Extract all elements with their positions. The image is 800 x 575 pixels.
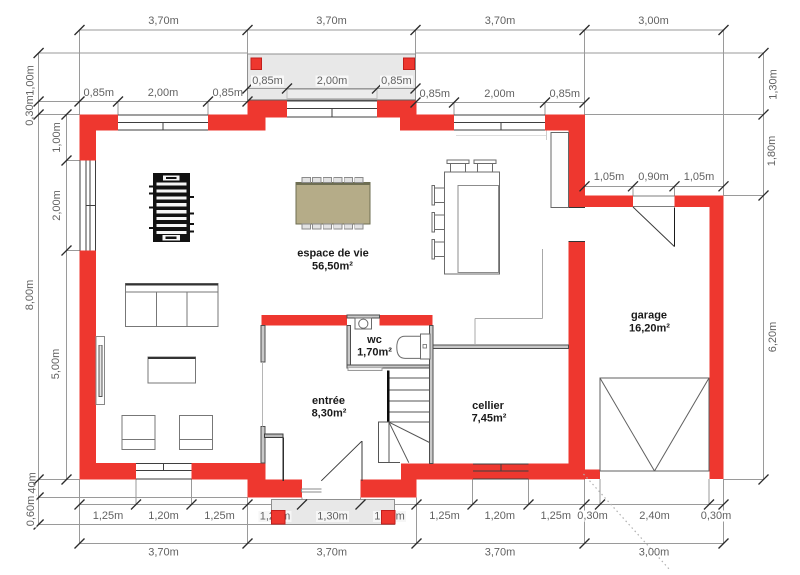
- svg-text:1,25m: 1,25m: [204, 510, 235, 522]
- svg-text:6,20m: 6,20m: [767, 322, 779, 353]
- svg-text:8,30m²: 8,30m²: [312, 408, 347, 420]
- svg-text:8,00m: 8,00m: [24, 280, 36, 311]
- svg-text:2,40m: 2,40m: [639, 510, 670, 522]
- svg-text:espace de vie: espace de vie: [297, 248, 369, 260]
- svg-text:3,70m: 3,70m: [317, 547, 348, 559]
- svg-text:16,20m²: 16,20m²: [629, 323, 670, 335]
- svg-text:1,00m: 1,00m: [25, 65, 37, 96]
- svg-text:1,80m: 1,80m: [766, 136, 778, 167]
- svg-text:0,85m: 0,85m: [252, 75, 283, 87]
- svg-text:1,30m: 1,30m: [768, 69, 780, 100]
- svg-text:1,25m: 1,25m: [540, 510, 571, 522]
- svg-text:3,00m: 3,00m: [639, 547, 670, 559]
- svg-text:0,85m: 0,85m: [83, 87, 114, 99]
- svg-text:3,00m: 3,00m: [638, 15, 669, 27]
- svg-text:1,05m: 1,05m: [684, 171, 715, 183]
- svg-text:1,70m²: 1,70m²: [357, 347, 392, 359]
- svg-text:3,70m: 3,70m: [485, 547, 516, 559]
- svg-text:1,30m: 1,30m: [317, 511, 348, 523]
- svg-text:1,20m: 1,20m: [148, 510, 179, 522]
- svg-text:cellier: cellier: [472, 400, 505, 412]
- svg-text:wc: wc: [366, 334, 382, 346]
- svg-text:56,50m²: 56,50m²: [312, 261, 353, 273]
- svg-text:3,70m: 3,70m: [148, 547, 179, 559]
- svg-text:1,20m: 1,20m: [484, 510, 515, 522]
- svg-text:3,70m: 3,70m: [148, 15, 179, 27]
- svg-text:0,85m: 0,85m: [381, 75, 412, 87]
- svg-text:0,90m: 0,90m: [638, 171, 669, 183]
- svg-text:0,85m: 0,85m: [419, 88, 450, 100]
- svg-text:2,00m: 2,00m: [148, 87, 179, 99]
- svg-text:1,00m: 1,00m: [51, 122, 63, 153]
- svg-text:3,70m: 3,70m: [316, 15, 347, 27]
- svg-text:7,45m²: 7,45m²: [472, 413, 507, 425]
- svg-text:2,00m: 2,00m: [484, 88, 515, 100]
- svg-text:0,30m: 0,30m: [24, 95, 36, 126]
- svg-text:2,00m: 2,00m: [317, 75, 348, 87]
- svg-text:entrée: entrée: [312, 395, 345, 407]
- svg-text:0,85m: 0,85m: [212, 87, 243, 99]
- svg-text:5,00m: 5,00m: [50, 349, 62, 380]
- svg-text:1,25m: 1,25m: [93, 510, 124, 522]
- svg-text:2,00m: 2,00m: [51, 190, 63, 221]
- svg-text:1,05m: 1,05m: [594, 171, 625, 183]
- svg-text:3,70m: 3,70m: [485, 15, 516, 27]
- svg-text:1,25m: 1,25m: [429, 510, 460, 522]
- svg-text:0,85m: 0,85m: [549, 88, 580, 100]
- svg-text:0,60m: 0,60m: [25, 496, 37, 527]
- svg-text:0,30m: 0,30m: [577, 510, 608, 522]
- svg-text:garage: garage: [631, 310, 667, 322]
- svg-text:0,30m: 0,30m: [701, 510, 732, 522]
